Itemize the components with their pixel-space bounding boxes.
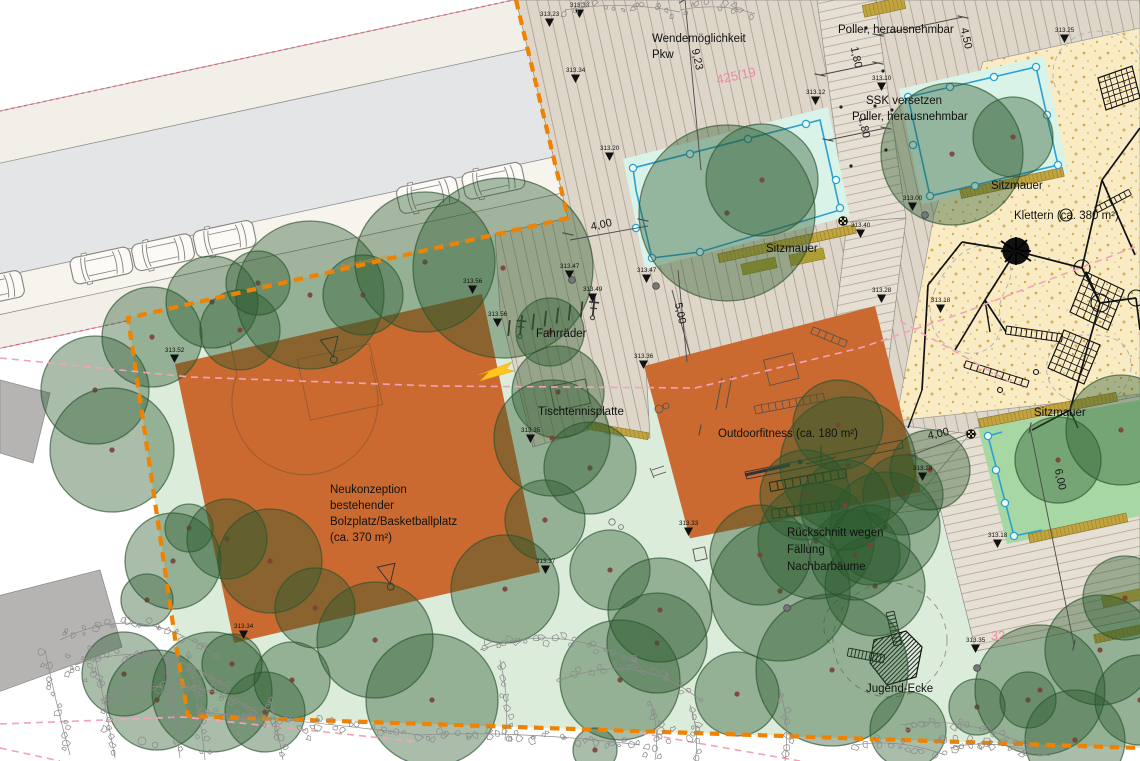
svg-text:Bolzplatz/Basketballplatz: Bolzplatz/Basketballplatz <box>330 516 457 528</box>
svg-text:313.34: 313.34 <box>234 623 254 630</box>
svg-text:Fällung: Fällung <box>787 544 825 556</box>
svg-text:313.56: 313.56 <box>488 311 508 318</box>
svg-text:bestehender: bestehender <box>330 500 394 512</box>
svg-text:Wendemöglichkeit: Wendemöglichkeit <box>652 33 747 45</box>
svg-text:Nachbarbäume: Nachbarbäume <box>787 561 866 573</box>
svg-text:313.36: 313.36 <box>634 353 654 360</box>
svg-text:313.12: 313.12 <box>806 89 826 96</box>
svg-text:Fahrräder: Fahrräder <box>536 328 587 340</box>
svg-text:313.37: 313.37 <box>536 558 556 565</box>
svg-text:313.28: 313.28 <box>872 287 892 294</box>
svg-text:32: 32 <box>991 628 1005 643</box>
svg-text:313.56: 313.56 <box>463 278 483 285</box>
svg-text:(ca. 370 m²): (ca. 370 m²) <box>330 532 392 544</box>
svg-text:Poller, herausnehmbar: Poller, herausnehmbar <box>838 24 954 36</box>
svg-text:313.23: 313.23 <box>540 11 560 18</box>
svg-text:Neukonzeption: Neukonzeption <box>330 484 407 496</box>
svg-text:313.00: 313.00 <box>903 195 923 202</box>
svg-text:313.40: 313.40 <box>851 222 871 229</box>
svg-text:Sitzmauer: Sitzmauer <box>1034 407 1086 419</box>
svg-text:313.28: 313.28 <box>913 465 933 472</box>
svg-text:Rückschnitt wegen: Rückschnitt wegen <box>787 527 884 539</box>
svg-text:Outdoorfitness (ca. 180 m²): Outdoorfitness (ca. 180 m²) <box>718 428 858 440</box>
svg-text:Pkw: Pkw <box>652 49 674 61</box>
svg-text:313.52: 313.52 <box>165 347 185 354</box>
svg-text:SSK versetzen: SSK versetzen <box>866 95 942 107</box>
svg-text:313.18: 313.18 <box>931 297 951 304</box>
svg-text:313.10: 313.10 <box>872 75 892 82</box>
svg-text:313.35: 313.35 <box>521 427 541 434</box>
svg-text:313.49: 313.49 <box>583 286 603 293</box>
svg-text:Tischtennisplatte: Tischtennisplatte <box>538 406 624 418</box>
svg-text:Poller, herausnehmbar: Poller, herausnehmbar <box>852 111 968 123</box>
svg-text:313.20: 313.20 <box>600 145 620 152</box>
svg-text:313.33: 313.33 <box>679 520 699 527</box>
svg-text:313.25: 313.25 <box>1055 27 1075 34</box>
svg-text:313.34: 313.34 <box>566 67 586 74</box>
svg-text:Sitzmauer: Sitzmauer <box>766 243 818 255</box>
svg-text:313.18: 313.18 <box>988 532 1008 539</box>
svg-text:Sitzmauer: Sitzmauer <box>991 180 1043 192</box>
svg-text:Jugend-Ecke: Jugend-Ecke <box>866 683 933 695</box>
svg-text:313.47: 313.47 <box>637 267 657 274</box>
svg-text:313.47: 313.47 <box>560 263 580 270</box>
svg-text:Klettern (ca. 380 m²): Klettern (ca. 380 m²) <box>1014 210 1119 222</box>
svg-text:313.35: 313.35 <box>966 637 986 644</box>
